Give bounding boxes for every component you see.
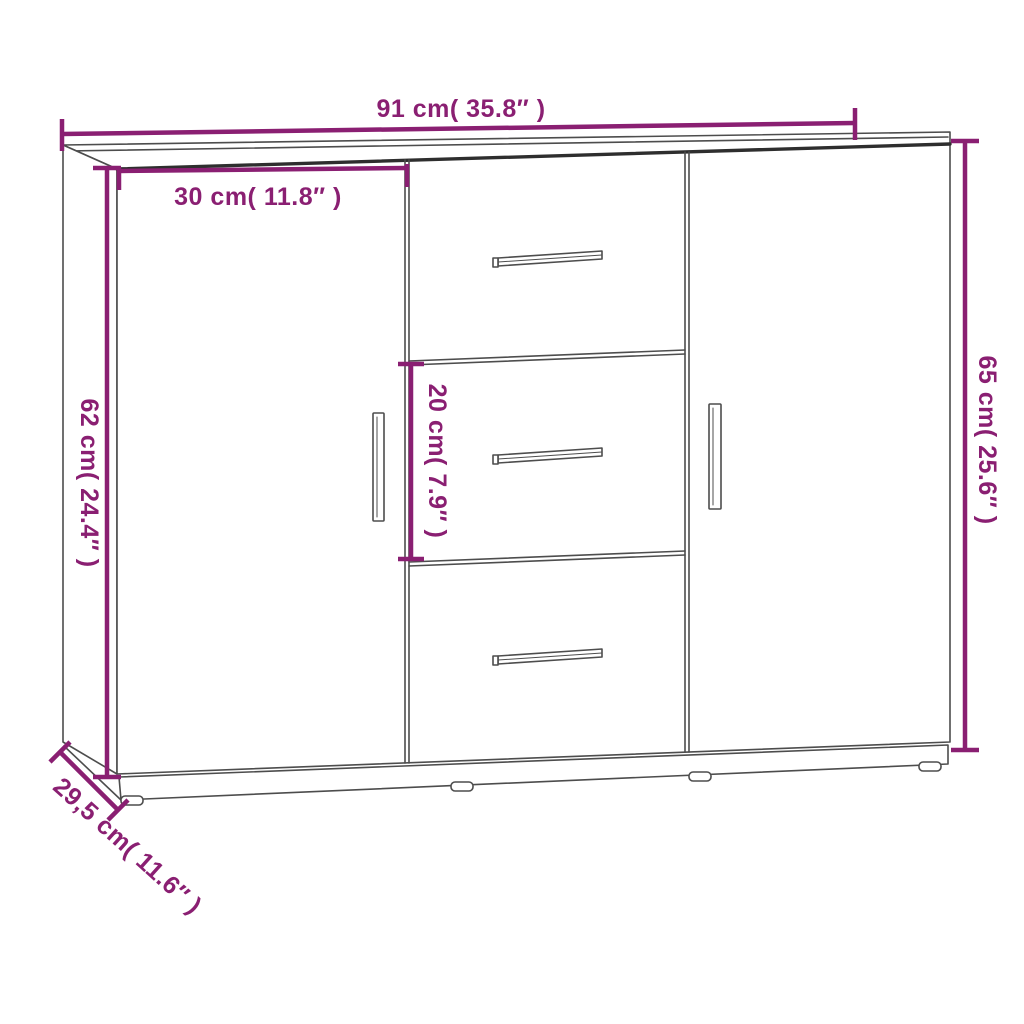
dimension-total-height: 65 cm( 25.6″ ) [951, 141, 1001, 750]
cabinet-foot [451, 782, 473, 791]
dimension-label-middle-drawer-height: 20 cm( 7.9″ ) [423, 384, 451, 539]
dimension-line [119, 168, 407, 171]
product-dimension-diagram: 91 cm( 35.8″ ) 30 cm( 11.8″ ) 62 cm( 24.… [0, 0, 1024, 1024]
dimension-label-total-width: 91 cm( 35.8″ ) [376, 95, 545, 123]
dimension-label-left-door-width: 30 cm( 11.8″ ) [174, 183, 342, 211]
cabinet-drawing [63, 132, 950, 805]
handle-bar [373, 413, 384, 521]
handle-end-cap [493, 455, 498, 464]
cabinet-foot [689, 772, 711, 781]
cabinet-foot [919, 762, 941, 771]
dimension-label-total-height: 65 cm( 25.6″ ) [973, 355, 1001, 524]
dimension-line [62, 123, 855, 134]
dimension-label-body-height: 62 cm( 24.4″ ) [75, 398, 103, 567]
handle-end-cap [493, 656, 498, 665]
handle-bar [709, 404, 721, 509]
handle-end-cap [493, 258, 498, 267]
left-door-handle [373, 413, 384, 521]
right-door-handle [709, 404, 721, 509]
diagram-canvas: 91 cm( 35.8″ ) 30 cm( 11.8″ ) 62 cm( 24.… [0, 0, 1024, 1024]
